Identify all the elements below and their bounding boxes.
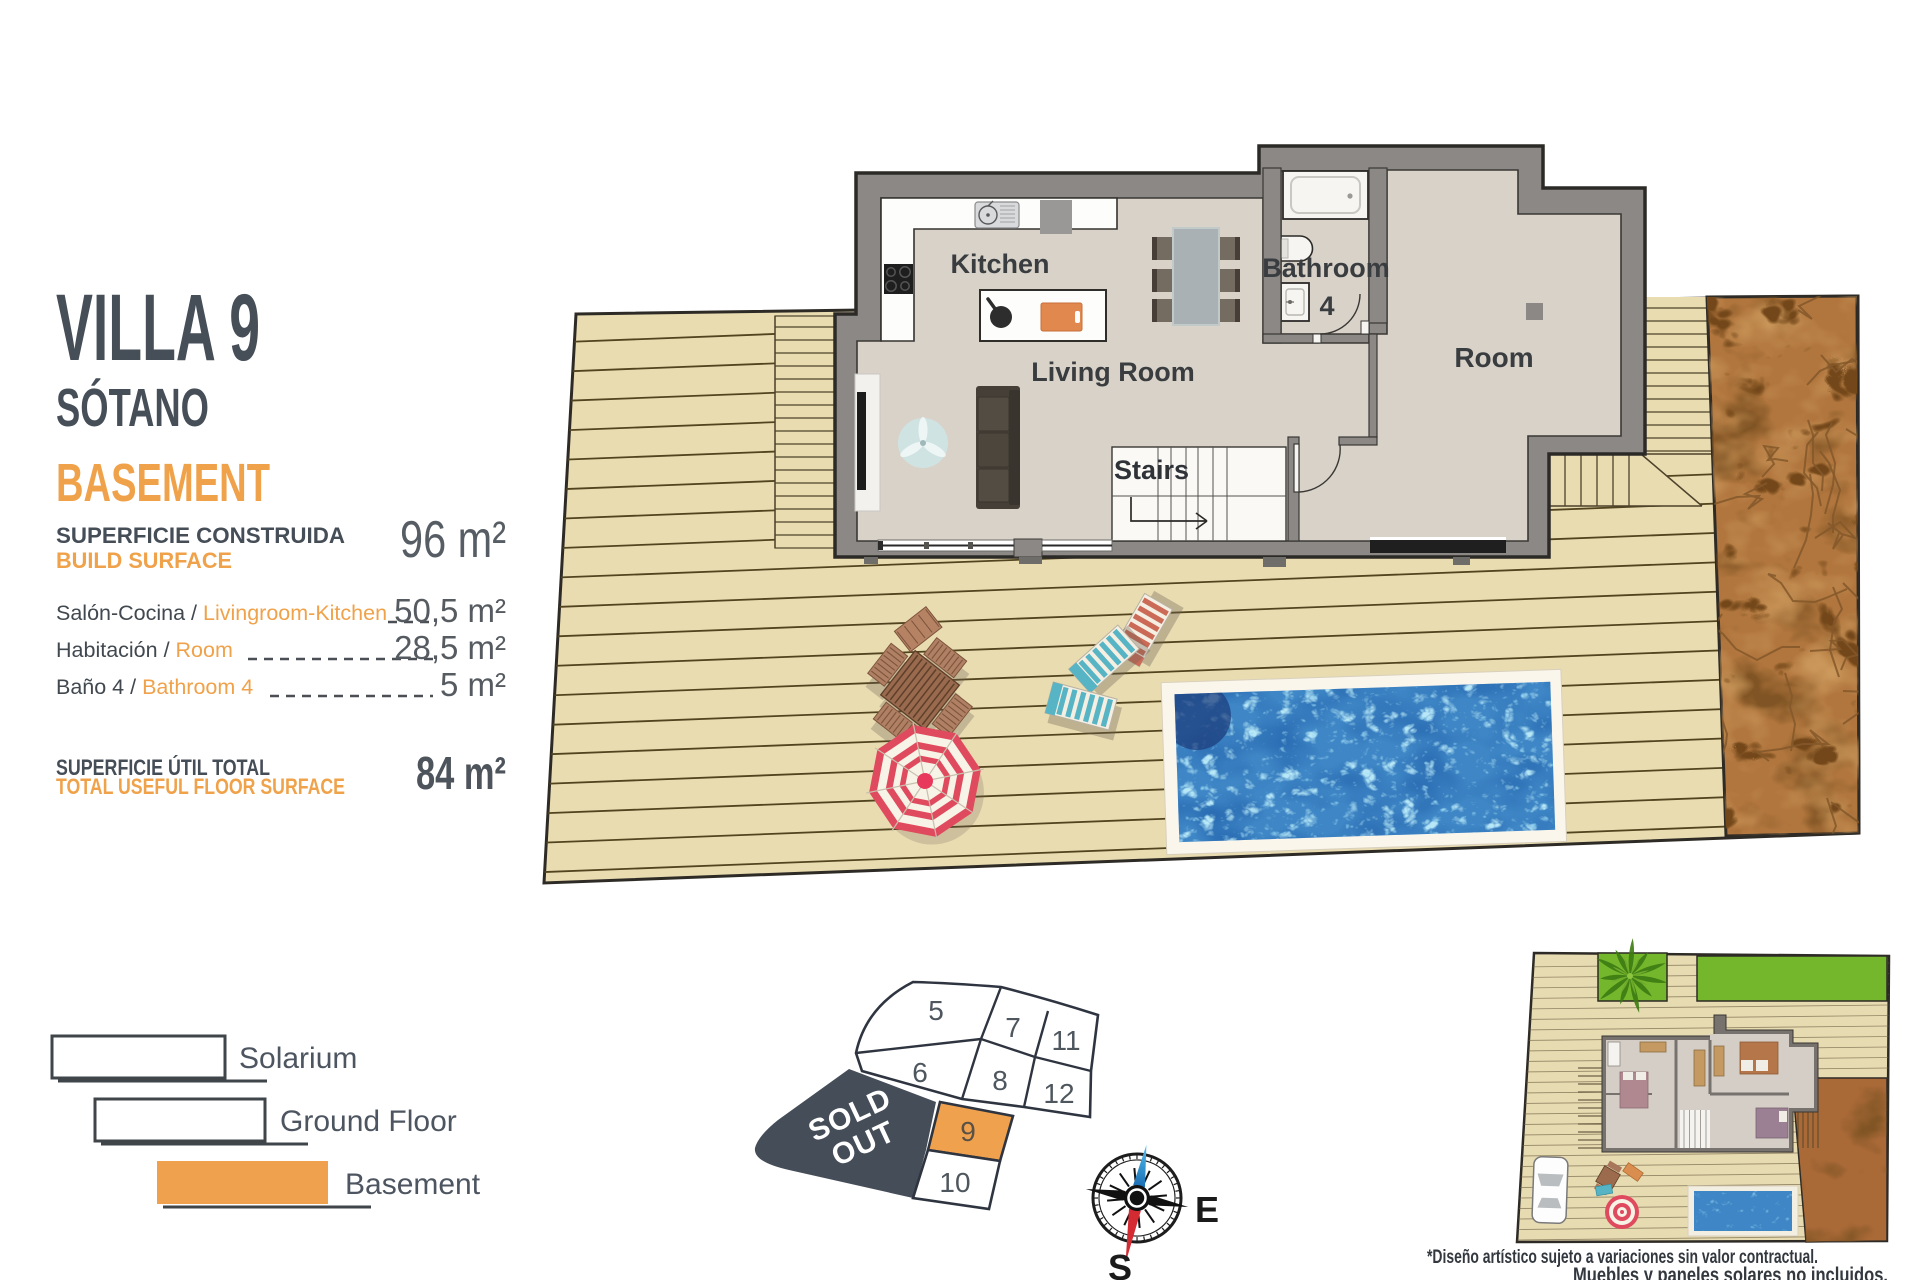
svg-text:6: 6 [912, 1057, 928, 1088]
svg-text:Solarium: Solarium [239, 1042, 357, 1075]
svg-text:SUPERFICIE CONSTRUIDA: SUPERFICIE CONSTRUIDA [56, 523, 345, 548]
svg-text:84 m²: 84 m² [416, 747, 506, 799]
svg-text:12: 12 [1043, 1078, 1074, 1109]
svg-text:Baño 4 / Bathroom 4: Baño 4 / Bathroom 4 [56, 675, 253, 699]
svg-text:Bathroom: Bathroom [1262, 253, 1390, 283]
svg-text:Muebles y paneles solares no i: Muebles y paneles solares no incluidos. [1573, 1264, 1888, 1280]
svg-text:4: 4 [1319, 291, 1334, 321]
svg-text:Salón-Cocina / Livingroom-Kitc: Salón-Cocina / Livingroom-Kitchen [56, 601, 387, 625]
svg-text:Ground Floor: Ground Floor [280, 1105, 457, 1138]
svg-text:96 m²: 96 m² [400, 511, 506, 569]
svg-text:9: 9 [960, 1116, 976, 1147]
svg-text:Basement: Basement [345, 1168, 481, 1201]
svg-text:Living Room: Living Room [1031, 357, 1195, 387]
svg-text:S: S [1108, 1247, 1132, 1280]
svg-text:28,5 m²: 28,5 m² [394, 629, 506, 666]
svg-text:BASEMENT: BASEMENT [56, 453, 270, 513]
svg-text:10: 10 [939, 1167, 970, 1198]
svg-text:SÓTANO: SÓTANO [56, 378, 209, 438]
svg-text:50,5 m²: 50,5 m² [394, 592, 506, 629]
svg-text:E: E [1195, 1189, 1219, 1230]
svg-text:5 m²: 5 m² [440, 666, 506, 703]
svg-text:5: 5 [928, 995, 944, 1026]
svg-text:VILLA 9: VILLA 9 [56, 275, 260, 381]
svg-text:Room: Room [1454, 342, 1533, 373]
svg-text:Stairs: Stairs [1114, 455, 1189, 485]
svg-text:Kitchen: Kitchen [950, 249, 1049, 279]
svg-text:8: 8 [992, 1065, 1008, 1096]
svg-text:Habitación / Room: Habitación / Room [56, 638, 233, 662]
svg-text:BUILD SURFACE: BUILD SURFACE [56, 548, 232, 573]
svg-text:TOTAL USEFUL FLOOR SURFACE: TOTAL USEFUL FLOOR SURFACE [56, 774, 345, 799]
svg-text:11: 11 [1051, 1025, 1080, 1056]
svg-text:7: 7 [1005, 1012, 1021, 1043]
